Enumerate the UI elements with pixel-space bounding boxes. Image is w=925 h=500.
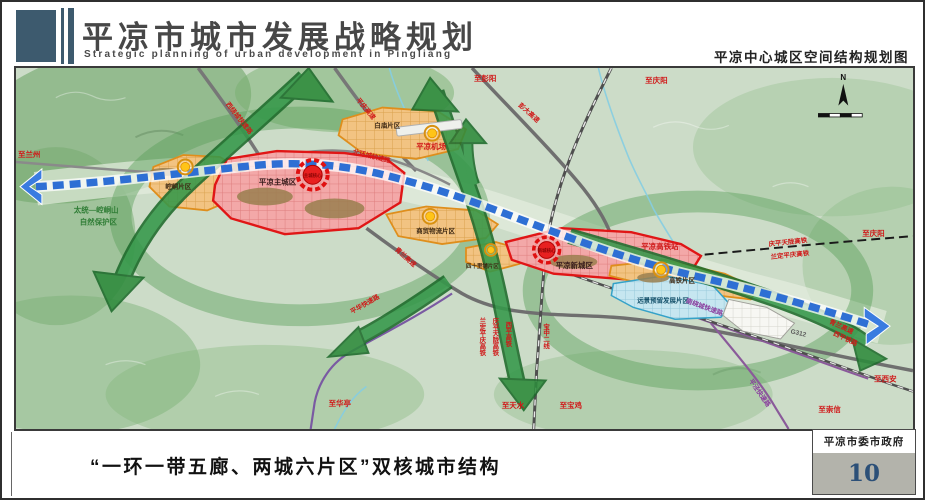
nature-reserve-label-1: 太统—崆峒山 (74, 204, 119, 214)
hsr-station-label: 平凉高铁站 (641, 241, 679, 251)
zone-kongtong-label: 崆峒片区 (165, 182, 191, 191)
page-info-box: 平凉市委市政府 10 (812, 429, 916, 495)
main-core-label: 主城核心 (304, 172, 322, 179)
dest-tianshui-label: 至天水 (502, 400, 525, 410)
page-number: 10 (813, 453, 915, 494)
document-subtitle: Strategic planning of urban development … (84, 49, 452, 60)
nature-reserve-label-2: 自然保护区 (80, 216, 118, 226)
zone-main-city-label: 平凉主城区 (259, 177, 297, 187)
new-core-label: 新城核心 (538, 247, 556, 254)
zone-new-city-label: 平凉新城区 (556, 260, 594, 270)
scale-bar (818, 113, 862, 116)
zone-hsr-label: 高铁片区 (669, 276, 695, 285)
dest-baoji-label: 至宝鸡 (560, 400, 583, 410)
dest-xian-label: 至西安 (874, 374, 897, 384)
agency-label: 平凉市委市政府 (813, 430, 915, 453)
footer-frame-line (11, 432, 12, 496)
baozhong-line-vertical-label: 宝中二线 (542, 322, 549, 350)
zone-baimiao-label: 白庙片区 (374, 120, 400, 129)
zone-reserve-label: 远景预留发展片区 (637, 295, 689, 304)
header-logo-block (16, 10, 56, 62)
airport-label: 平凉机场 (416, 141, 446, 151)
dest-huating-label: 至华亭 (329, 398, 352, 408)
map-caption: 平凉中心城区空间结构规划图 (714, 46, 909, 66)
dest-chongxin-label: 至崇信 (818, 404, 841, 414)
dest-qingyang-top-label: 至庆阳 (645, 75, 667, 85)
compass-n-label: N (840, 73, 846, 82)
map-canvas: N (16, 68, 913, 429)
zone-sishilipu-label: 四十里铺片区 (466, 262, 499, 270)
landing-hsr-vertical-label: 兰定平庆高铁 (478, 316, 486, 357)
dest-lanzhou-label: 至兰州 (18, 149, 40, 159)
zone-logistics-label: 商贸物流片区 (416, 226, 455, 235)
planning-map: N (14, 66, 915, 431)
header-accent-bar (68, 8, 74, 64)
plan-document-page: 平凉市城市发展战略规划 Strategic planning of urban … (0, 0, 925, 500)
structure-caption: “一环一带五廊、两城六片区”双核城市结构 (90, 452, 501, 479)
dest-pengyang-label: 至彭阳 (474, 73, 496, 83)
xiping-hsr-vertical-label: 西平高铁 (504, 321, 512, 348)
header-accent-bar (61, 8, 64, 64)
dest-qingyang-right-label: 至庆阳 (862, 228, 884, 238)
qingping-hsr-vertical-label: 庆平天陇高铁 (491, 316, 499, 357)
